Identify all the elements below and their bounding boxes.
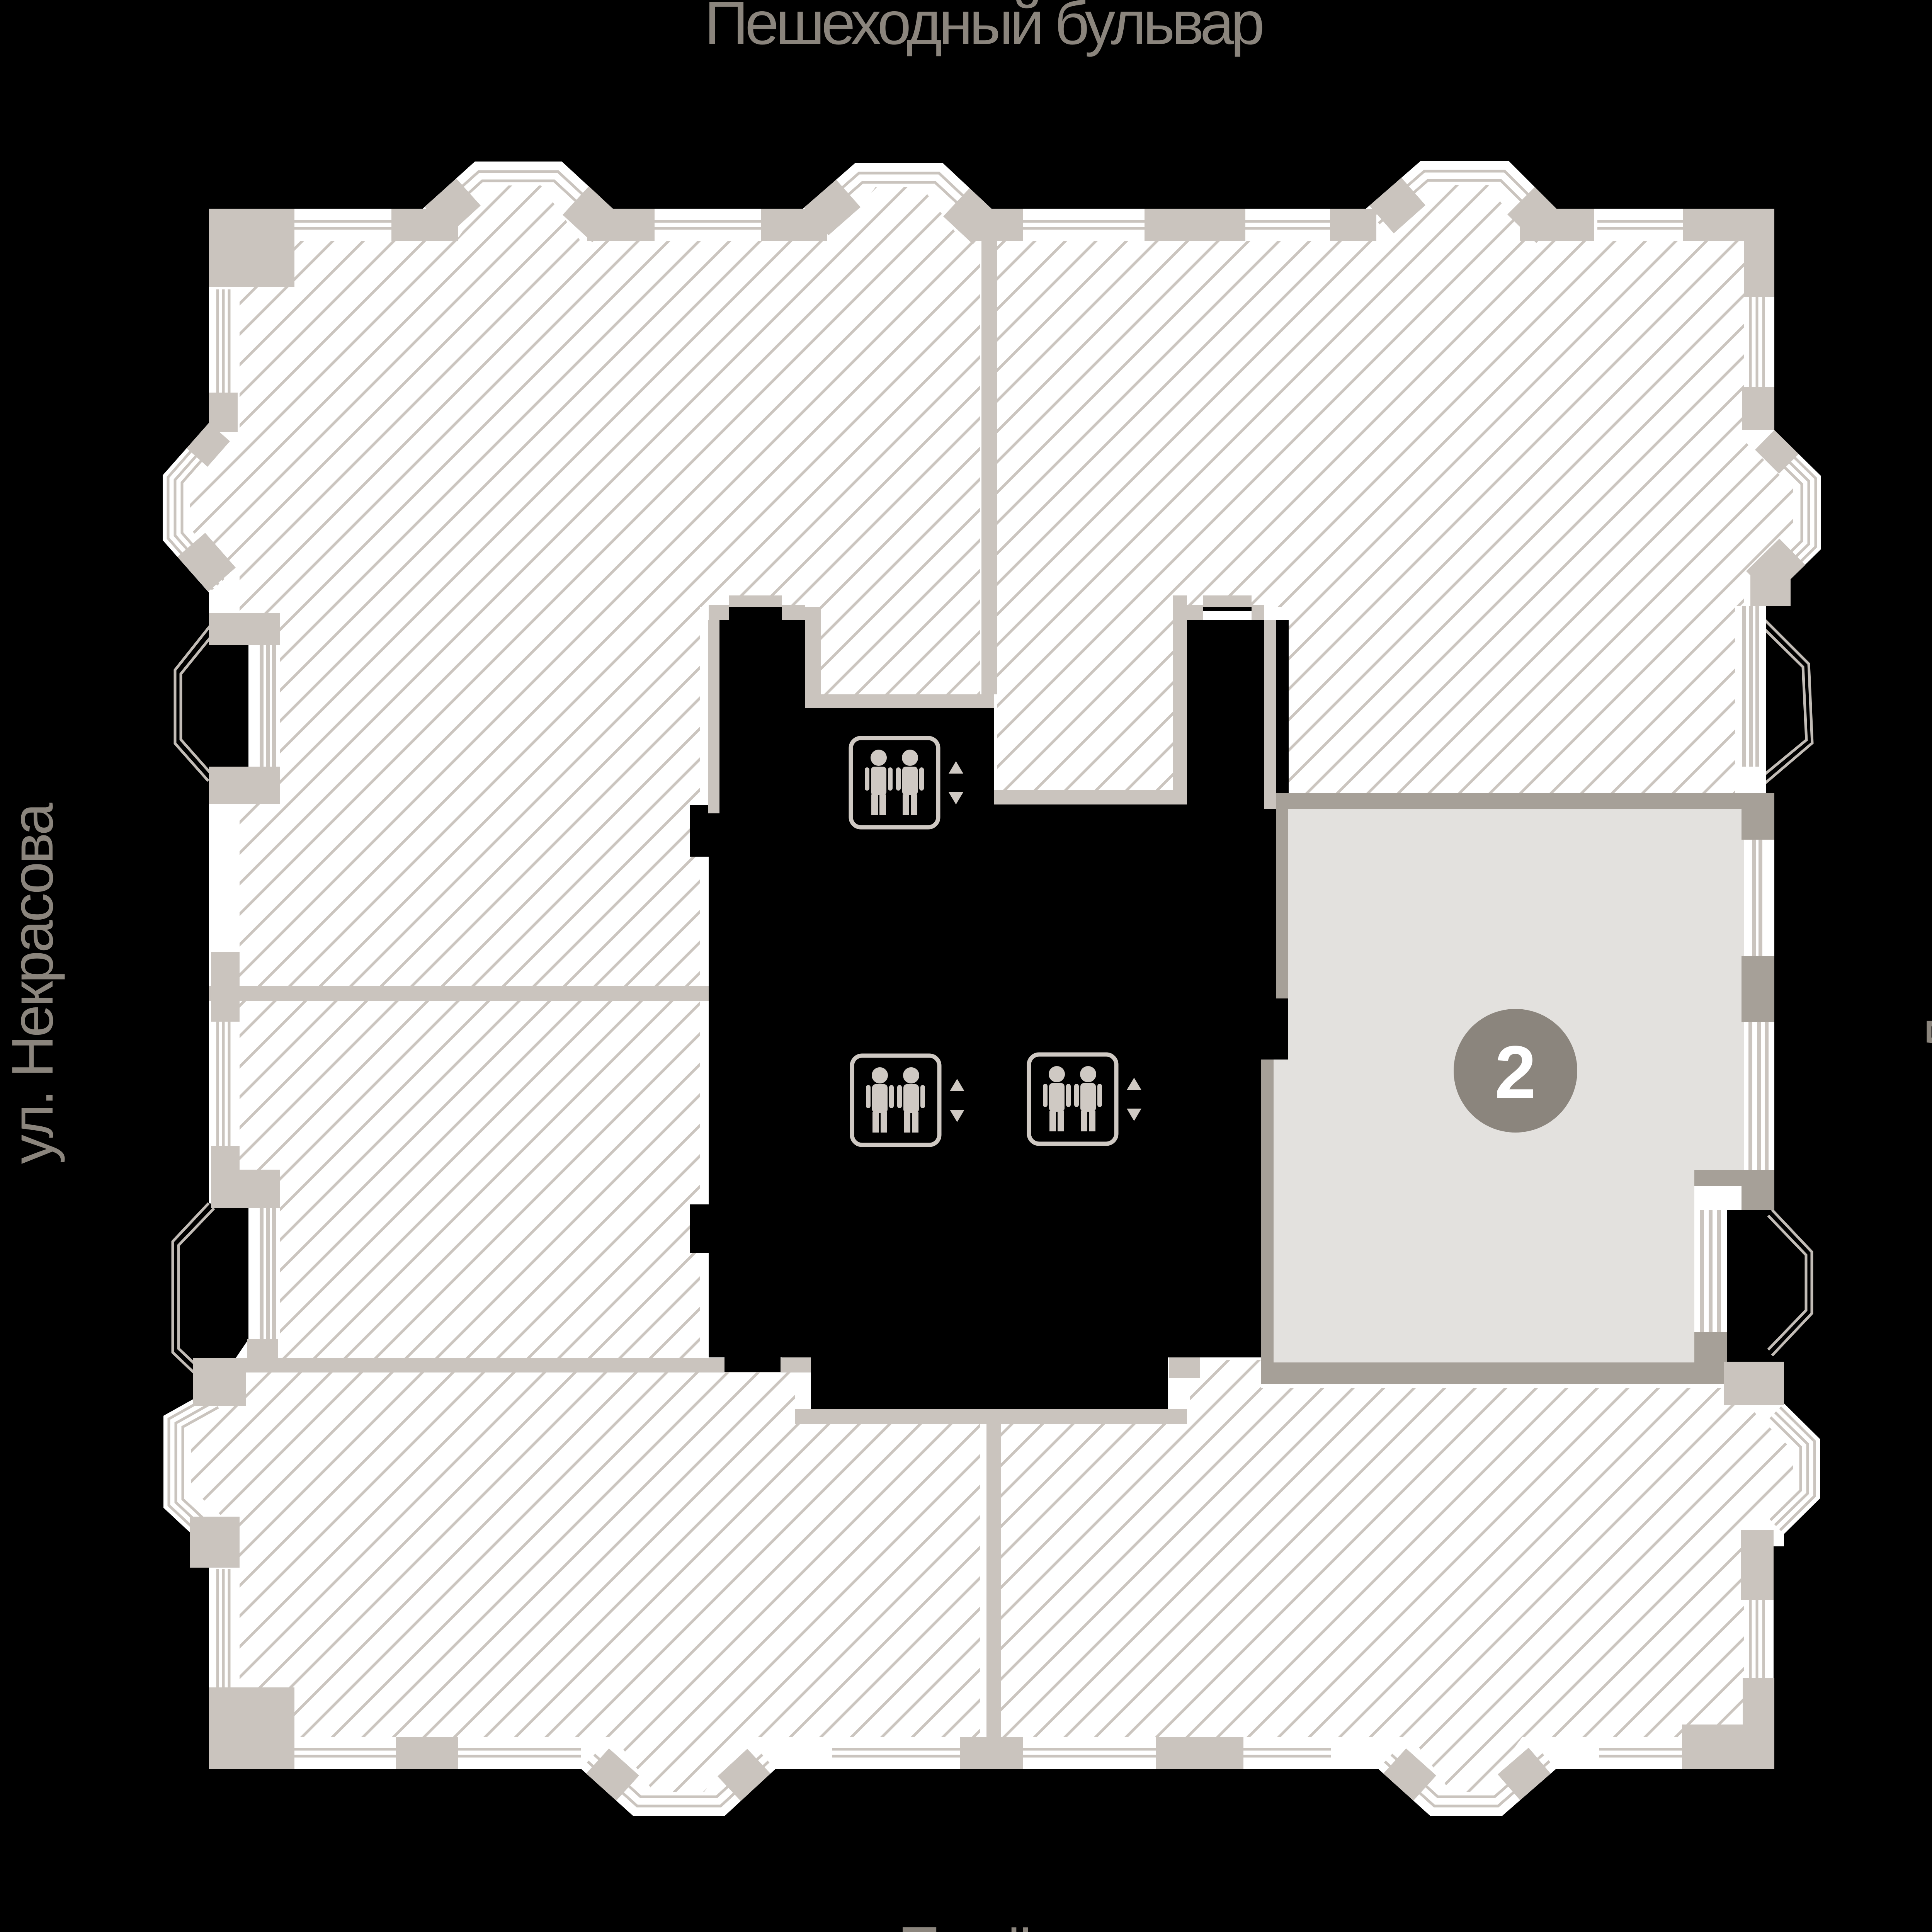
svg-text:2: 2 [1495,1030,1536,1114]
svg-text:Пешеходный бульвар: Пешеходный бульвар [704,0,1265,57]
svg-text:Двор: Двор [1914,923,1932,1056]
svg-text:ул. Печёрская: ул. Печёрская [802,1915,1192,1932]
svg-text:ул. Некрасова: ул. Некрасова [0,803,65,1164]
